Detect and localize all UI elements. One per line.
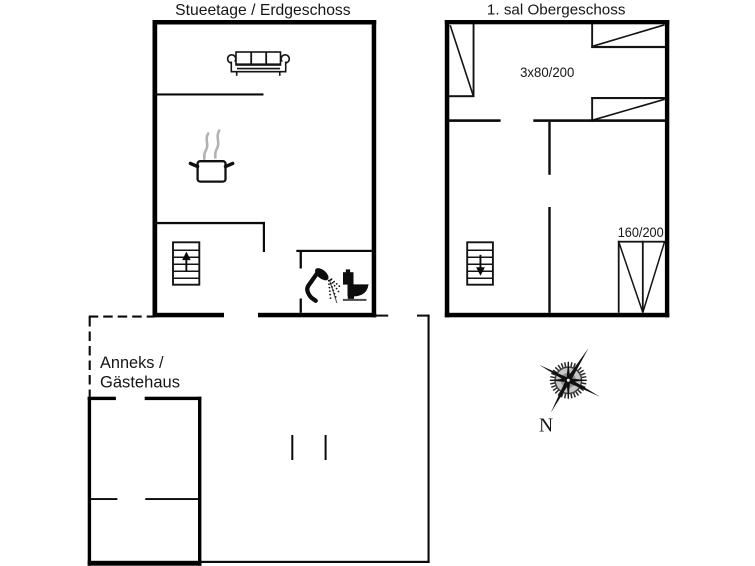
svg-text:N: N xyxy=(539,416,553,437)
svg-text:Anneks /: Anneks / xyxy=(100,353,164,372)
svg-text:3x80/200: 3x80/200 xyxy=(520,64,574,80)
svg-text:1. sal Obergeschoss: 1. sal Obergeschoss xyxy=(487,1,626,18)
svg-text:Stueetage / Erdgeschoss: Stueetage / Erdgeschoss xyxy=(175,2,351,19)
svg-text:160/200: 160/200 xyxy=(618,224,664,240)
svg-text:Gästehaus: Gästehaus xyxy=(100,373,180,392)
